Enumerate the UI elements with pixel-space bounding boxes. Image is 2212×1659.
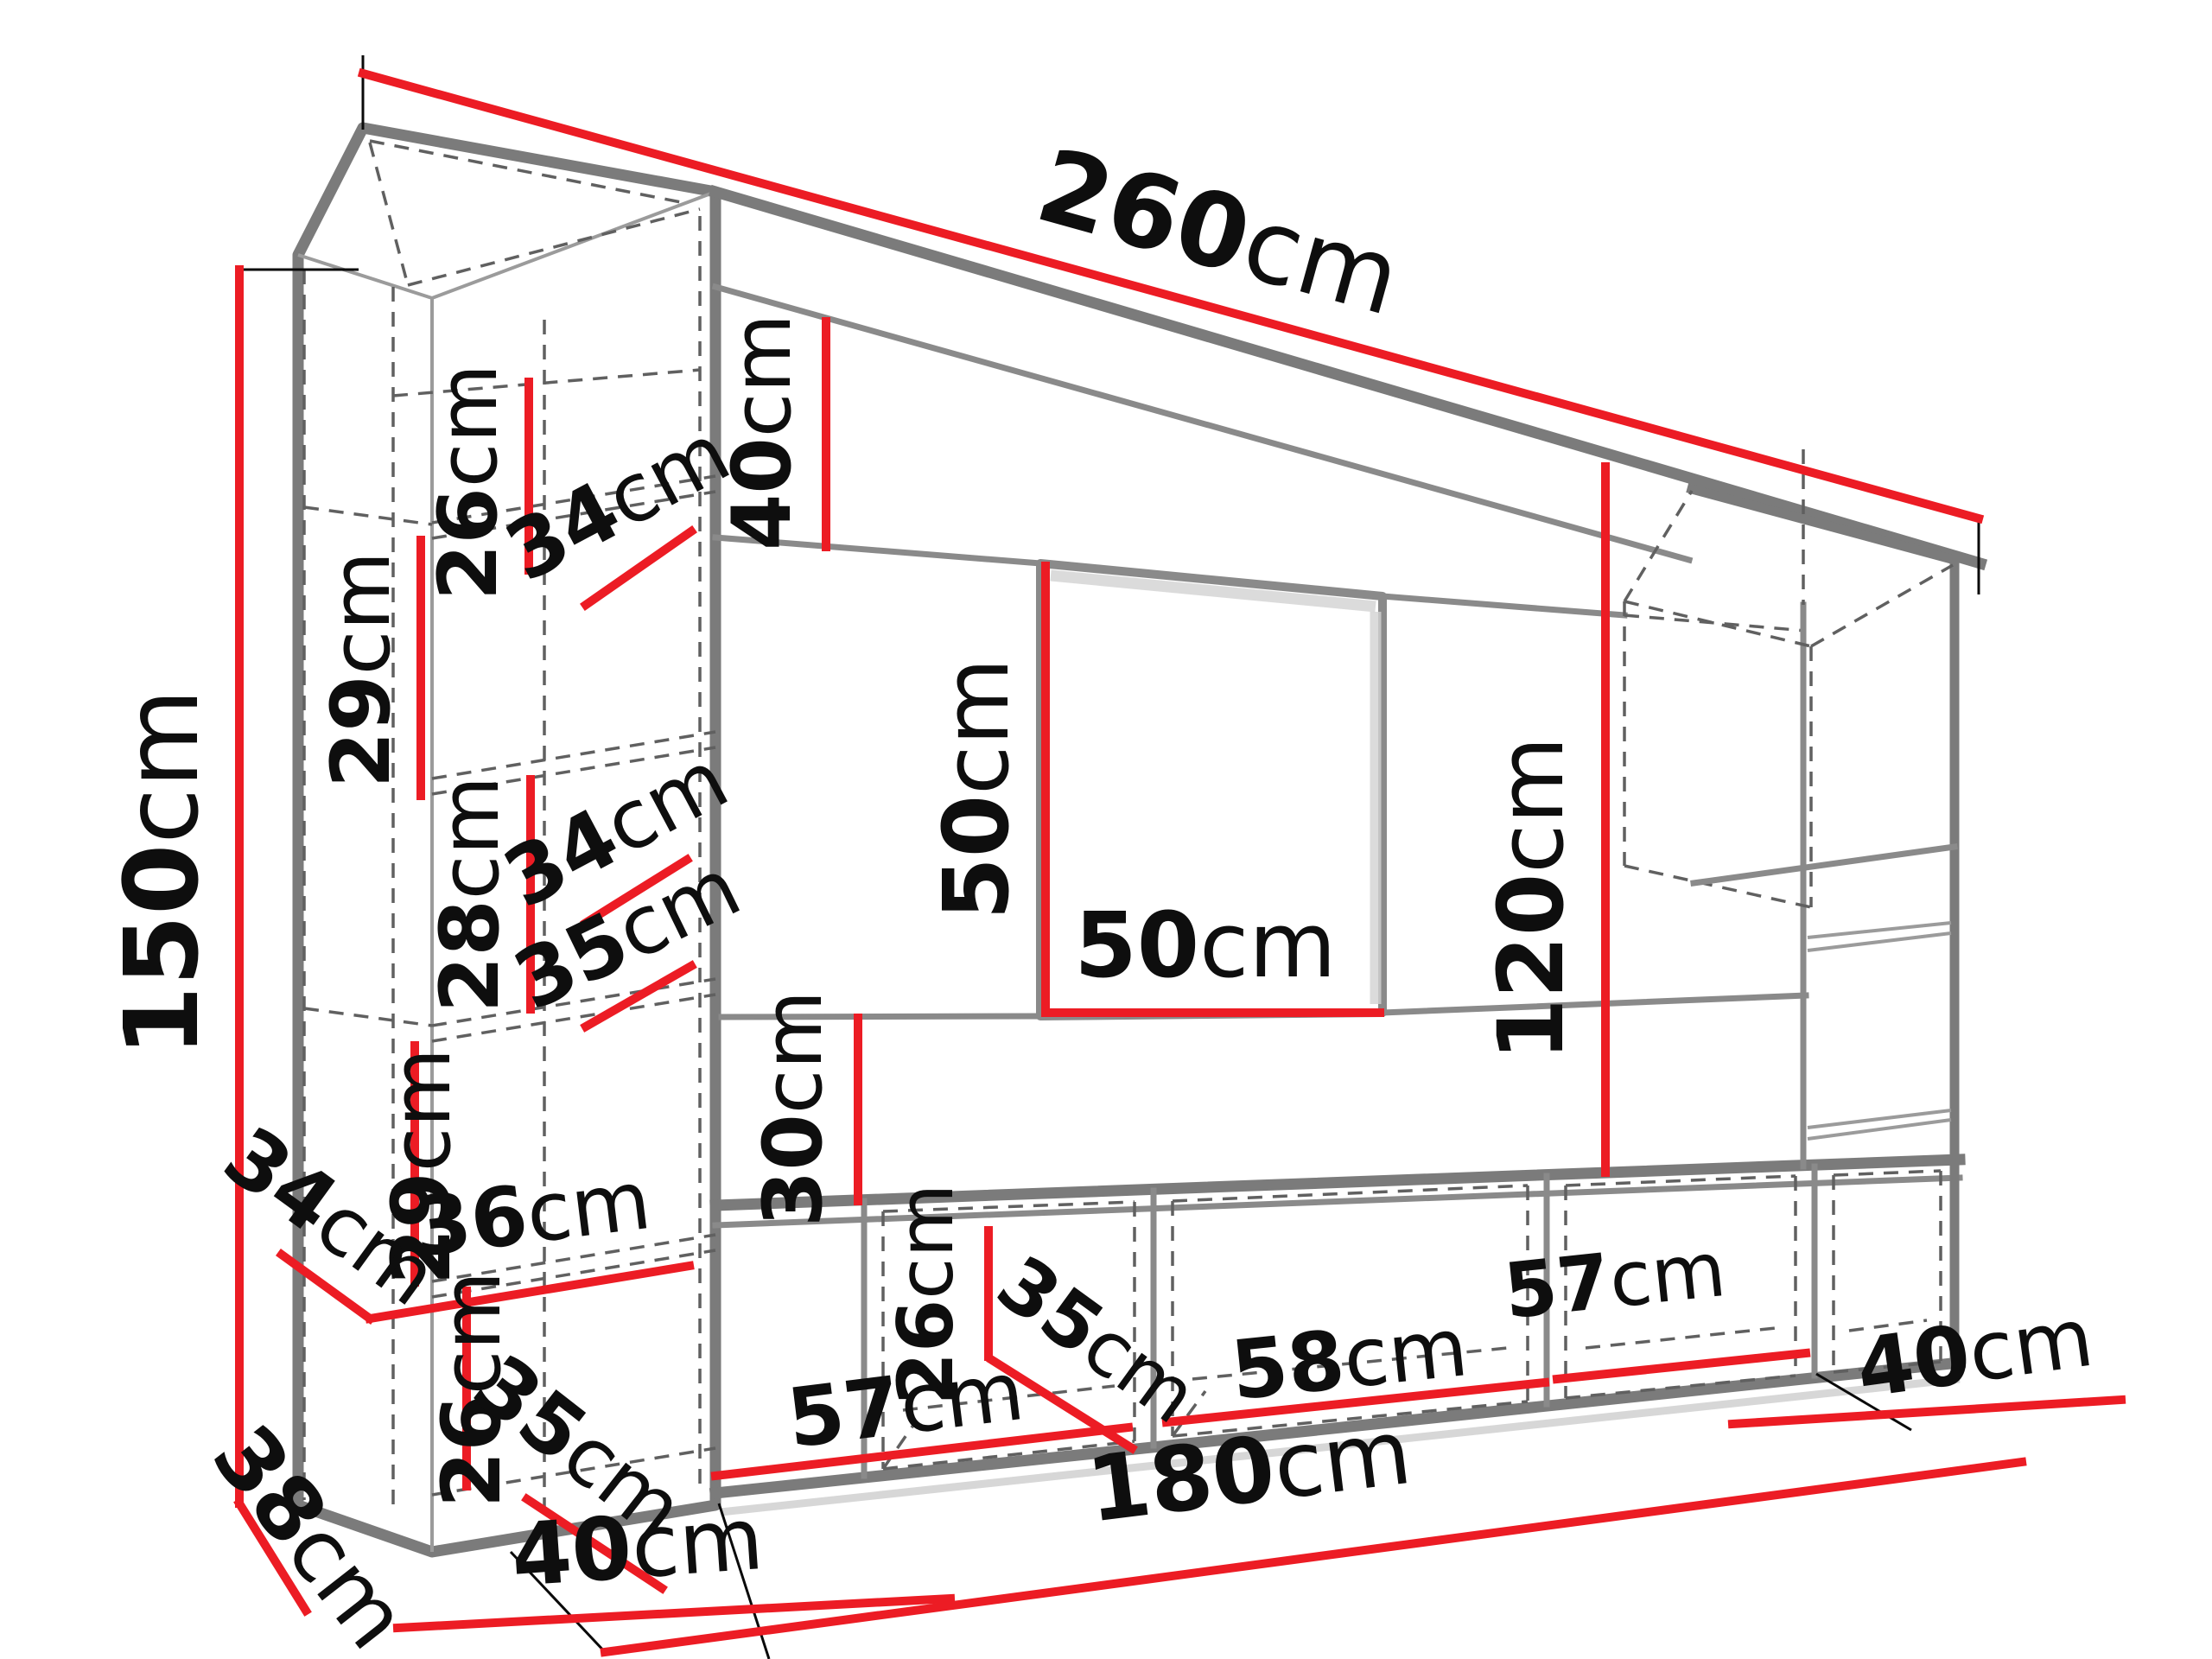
right-column-shelf-lines (1808, 923, 1951, 1139)
diagram-canvas: 260cm 150cm 26cm 34cm 29cm 34cm 40cm 28c… (0, 0, 2212, 1659)
label-bench-c3-w: 57cm (1500, 1224, 1730, 1336)
label-col-c3-h: 28cm (423, 776, 518, 1013)
label-bench-c1-w: 57cm (783, 1344, 1029, 1467)
label-top-panel-h: 40cm (715, 314, 810, 550)
band-line-right-of-tv (1382, 995, 1806, 1013)
label-col-c2-h: 29cm (315, 551, 409, 788)
furniture-dimension-diagram: 260cm 150cm 26cm 34cm 29cm 34cm 40cm 28c… (0, 0, 2212, 1659)
label-total-height: 150cm (102, 689, 221, 1057)
label-col-c1-h: 26cm (422, 364, 516, 601)
label-tv-w: 50cm (1074, 893, 1336, 998)
right-cube-bottom-edge (1694, 847, 1955, 883)
label-right-h: 120cm (1478, 736, 1584, 1061)
beam-bottom-edge-right (1382, 596, 1624, 615)
label-col-base-w: 40cm (508, 1488, 766, 1606)
beam-bottom-hidden (1624, 615, 1806, 631)
beam-face-top-edge (715, 287, 1689, 560)
label-bench-total-w: 180cm (1082, 1399, 1417, 1543)
right-column-structure (1624, 449, 1955, 1363)
label-tv-h: 50cm (924, 658, 1029, 919)
label-bench-c2-w: 58cm (1227, 1300, 1472, 1419)
label-cube-depth: 40cm (1851, 1291, 2099, 1417)
label-under-tv-h: 30cm (747, 990, 841, 1227)
dim-line-bench-c3-w (1557, 1353, 1806, 1379)
